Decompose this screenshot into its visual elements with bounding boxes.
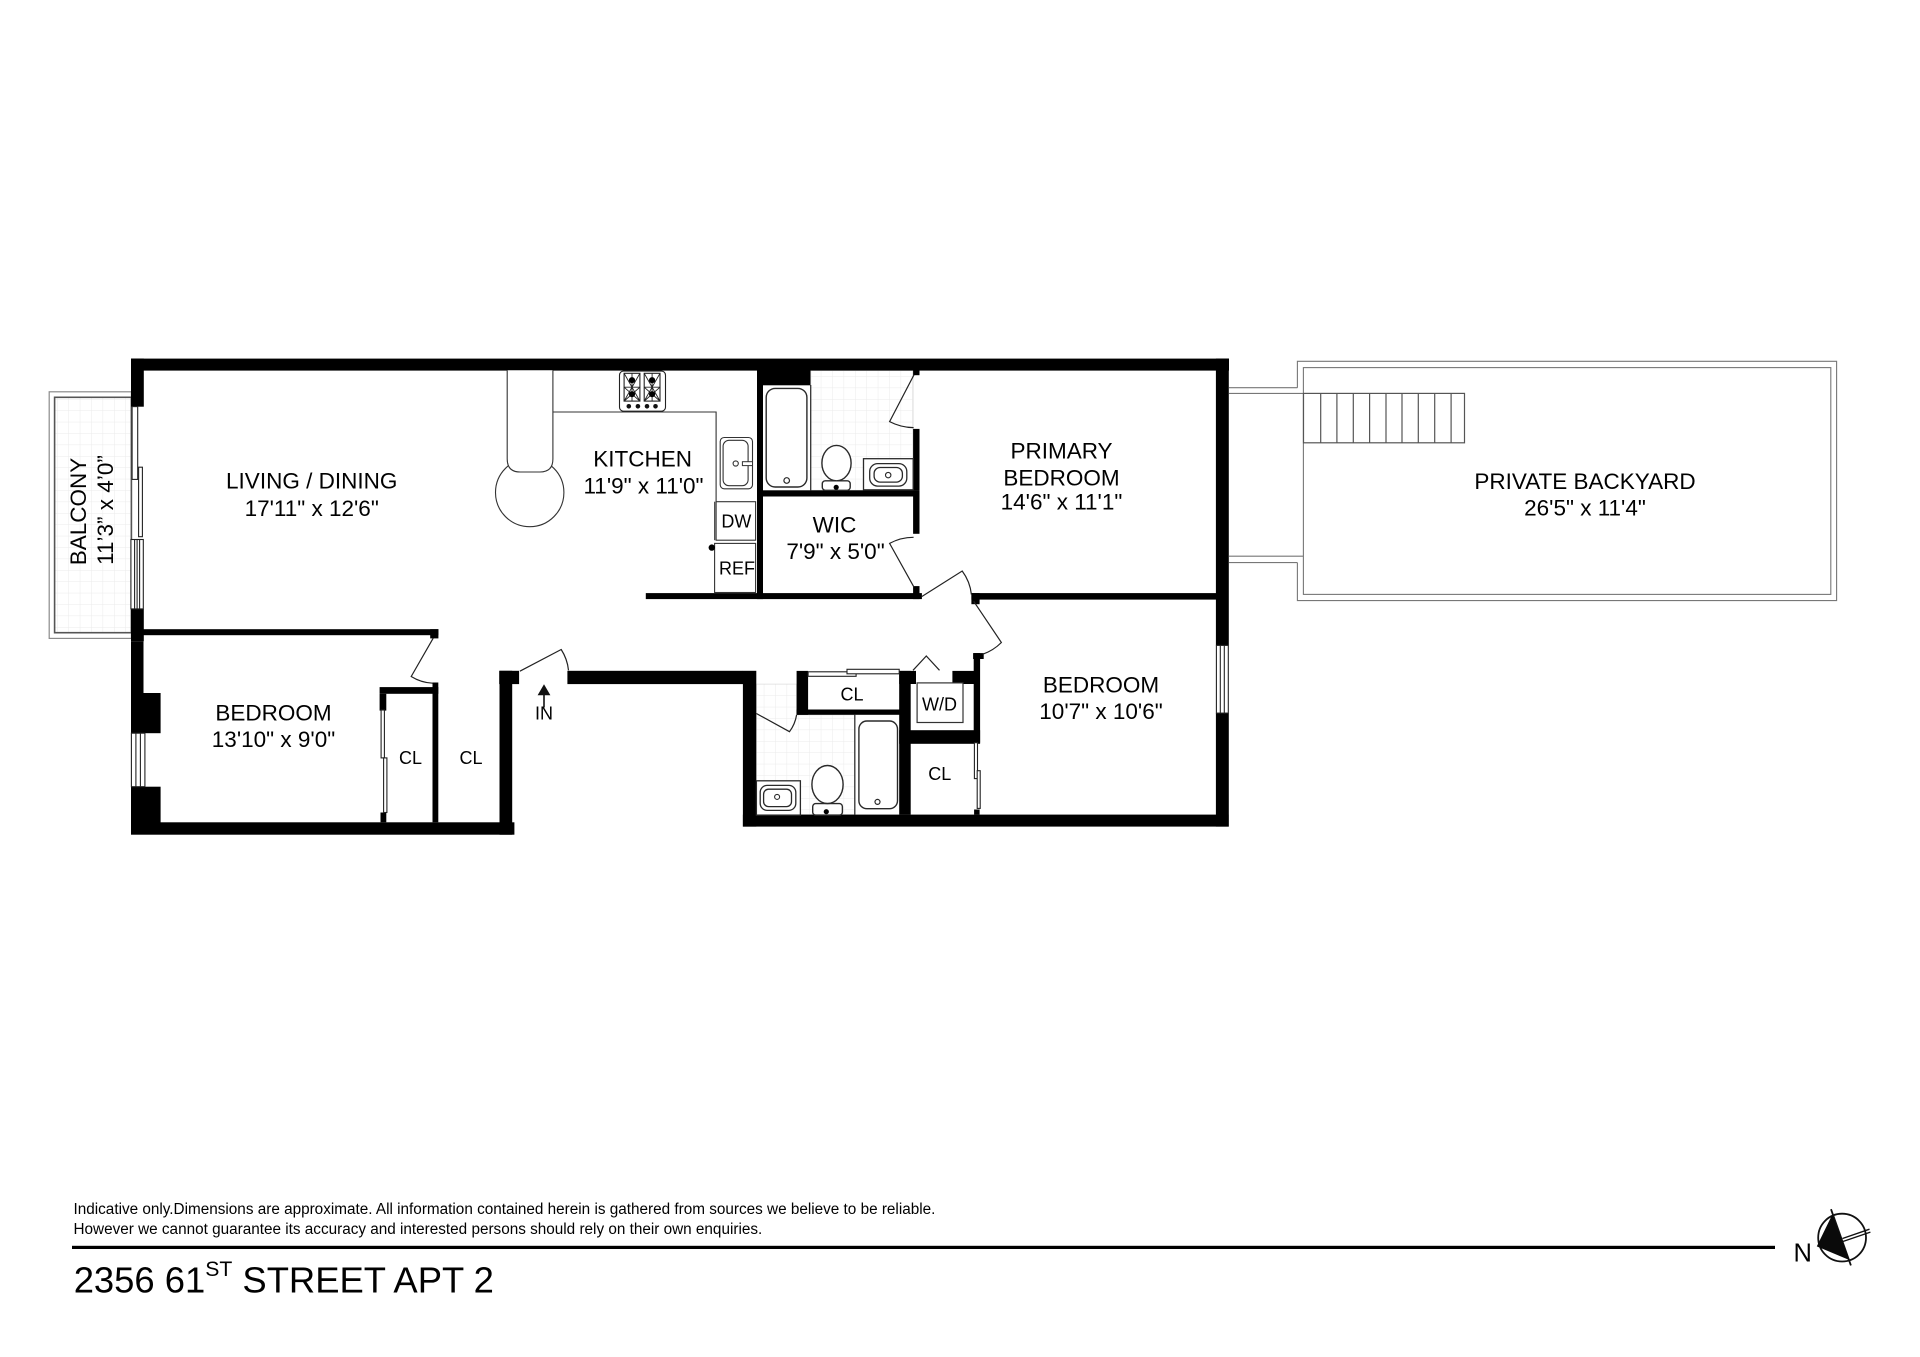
svg-text:N: N — [1794, 1240, 1812, 1268]
svg-text:17'11" x 12'6": 17'11" x 12'6" — [245, 496, 379, 521]
svg-text:BEDROOM: BEDROOM — [1003, 466, 1119, 491]
svg-text:BALCONY: BALCONY — [66, 458, 91, 566]
svg-text:REF: REF — [719, 559, 755, 579]
svg-text:CL: CL — [459, 748, 482, 768]
svg-text:DW: DW — [721, 512, 751, 532]
svg-text:2356 61ST STREET APT 2: 2356 61ST STREET APT 2 — [74, 1258, 494, 1301]
svg-text:W/D: W/D — [922, 695, 957, 715]
svg-text:11'9" x 11'0": 11'9" x 11'0" — [583, 474, 703, 499]
svg-text:11’3” x 4’0”: 11’3” x 4’0” — [93, 455, 118, 565]
svg-text:14'6" x 11'1": 14'6" x 11'1" — [1001, 490, 1123, 515]
svg-text:CL: CL — [840, 685, 863, 705]
svg-text:CL: CL — [928, 764, 951, 784]
svg-text:IN: IN — [535, 704, 553, 724]
svg-text:However we cannot guarantee it: However we cannot guarantee its accuracy… — [74, 1221, 763, 1238]
svg-text:BEDROOM: BEDROOM — [215, 701, 331, 726]
svg-text:PRIVATE BACKYARD: PRIVATE BACKYARD — [1474, 469, 1695, 494]
svg-text:10'7" x 10'6": 10'7" x 10'6" — [1039, 699, 1162, 724]
svg-text:13'10" x 9'0": 13'10" x 9'0" — [212, 727, 335, 752]
svg-text:PRIMARY: PRIMARY — [1010, 439, 1112, 464]
svg-text:CL: CL — [399, 748, 422, 768]
svg-text:BEDROOM: BEDROOM — [1043, 673, 1159, 698]
svg-text:LIVING / DINING: LIVING / DINING — [226, 469, 397, 494]
svg-text:WIC: WIC — [813, 513, 857, 538]
svg-text:Indicative only.Dimensions are: Indicative only.Dimensions are approxima… — [74, 1201, 936, 1218]
svg-text:7'9" x 5'0": 7'9" x 5'0" — [786, 539, 884, 564]
svg-text:26'5" x 11'4": 26'5" x 11'4" — [1524, 495, 1646, 520]
svg-text:KITCHEN: KITCHEN — [593, 447, 692, 472]
